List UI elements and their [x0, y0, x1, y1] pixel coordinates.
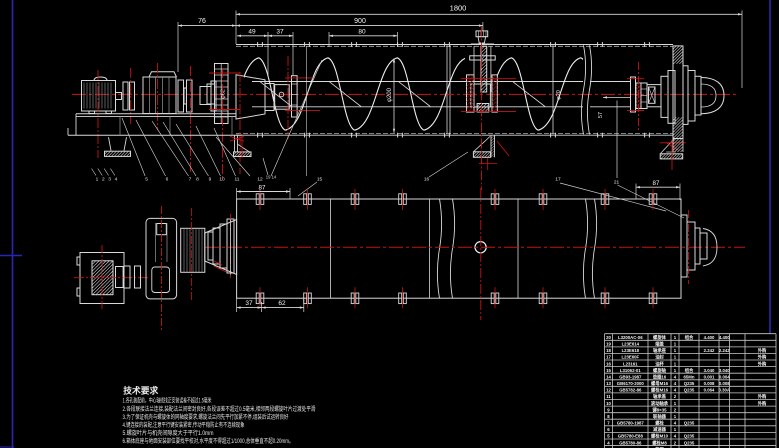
svg-text:14: 14 — [606, 375, 611, 380]
svg-text:L23E618: L23E618 — [622, 348, 640, 353]
svg-text:4.400: 4.400 — [704, 335, 715, 340]
svg-text:Q235: Q235 — [684, 421, 695, 426]
svg-text:0.008: 0.008 — [704, 381, 715, 386]
svg-text:900: 900 — [354, 18, 366, 25]
svg-text:4: 4 — [115, 176, 118, 182]
svg-text:Q235: Q235 — [684, 434, 695, 439]
svg-text:联轴器: 联轴器 — [653, 413, 667, 420]
svg-text:62: 62 — [278, 300, 286, 307]
svg-text:螺旋体: 螺旋体 — [653, 334, 667, 341]
svg-text:φ200: φ200 — [387, 87, 393, 102]
svg-text:10: 10 — [219, 176, 225, 182]
svg-text:5: 5 — [145, 176, 148, 182]
svg-text:12: 12 — [606, 388, 611, 393]
svg-text:垫圈16: 垫圈16 — [653, 374, 667, 381]
svg-text:18: 18 — [606, 348, 611, 353]
svg-text:20: 20 — [606, 335, 611, 340]
svg-text:螺栓: 螺栓 — [655, 420, 664, 427]
svg-text:19: 19 — [606, 342, 611, 347]
svg-text:87: 87 — [653, 180, 660, 187]
svg-text:3.040: 3.040 — [719, 368, 730, 373]
svg-text:4.键连接的装配,注意平行键安装紧密,传动平稳防止有不连续现: 4.键连接的装配,注意平行键安装紧密,传动平稳防止有不连续现象 — [123, 421, 245, 429]
svg-text:76: 76 — [198, 18, 206, 25]
svg-text:1: 1 — [96, 176, 99, 182]
svg-text:11: 11 — [606, 394, 611, 399]
svg-text:GB5780-E88: GB5780-E88 — [618, 434, 644, 439]
svg-text:16: 16 — [606, 361, 611, 366]
svg-text:5.螺旋叶片与机壳间隙度大于平行1.0mm: 5.螺旋叶片与机壳间隙度大于平行1.0mm — [123, 429, 214, 437]
svg-text:外购: 外购 — [758, 347, 767, 354]
svg-text:外购: 外购 — [758, 354, 767, 361]
svg-text:3.040: 3.040 — [704, 368, 715, 373]
svg-text:L3200AC-06: L3200AC-06 — [618, 335, 643, 340]
svg-text:11: 11 — [235, 176, 240, 182]
svg-text:轴承盖: 轴承盖 — [653, 393, 667, 400]
svg-text:87: 87 — [259, 184, 266, 191]
svg-text:2: 2 — [102, 176, 105, 182]
svg-text:滚动轴承: 滚动轴承 — [651, 400, 669, 407]
svg-text:GB93-1987: GB93-1987 — [619, 375, 642, 380]
svg-text:螺栓M10: 螺栓M10 — [651, 433, 669, 440]
svg-text:外购: 外购 — [758, 393, 767, 400]
svg-text:2.242: 2.242 — [704, 348, 715, 353]
svg-text:3: 3 — [108, 176, 111, 182]
svg-text:Q235: Q235 — [684, 440, 695, 445]
svg-text:4.400: 4.400 — [719, 335, 730, 340]
svg-text:φ20: φ20 — [556, 90, 562, 100]
svg-text:9: 9 — [209, 176, 212, 182]
svg-text:6.箱体底座与地面安装部位要找平校对,水平度不得超过1/10: 6.箱体底座与地面安装部位要找平校对,水平度不得超过1/1000,总体垂直不超0… — [123, 437, 294, 445]
svg-text:GB5780-86: GB5780-86 — [619, 440, 642, 445]
svg-text:2.各段联接法兰连接,装配法兰间密封良好,各段误差不超过0.: 2.各段联接法兰连接,装配法兰间密封良好,各段误差不超过0.5毫米,相邻两段螺旋… — [123, 405, 316, 413]
svg-text:GB5780-1987: GB5780-1987 — [617, 421, 645, 426]
svg-text:17: 17 — [555, 176, 561, 182]
svg-text:L23E60F: L23E60F — [621, 355, 639, 360]
svg-text:15: 15 — [606, 368, 611, 373]
svg-text:端盖: 端盖 — [655, 341, 664, 348]
svg-text:L23161: L23161 — [623, 361, 638, 366]
svg-text:L31062-01: L31062-01 — [620, 368, 641, 373]
svg-text:0.008: 0.008 — [719, 381, 730, 386]
svg-text:螺栓M16: 螺栓M16 — [651, 387, 669, 394]
svg-text:10: 10 — [606, 401, 611, 406]
svg-text:12: 12 — [257, 176, 263, 182]
svg-text:0.30A: 0.30A — [719, 388, 730, 393]
svg-text:8: 8 — [196, 176, 199, 182]
svg-text:15: 15 — [317, 176, 323, 182]
svg-text:6: 6 — [166, 176, 169, 182]
svg-text:1800: 1800 — [450, 4, 467, 13]
svg-text:57: 57 — [598, 112, 604, 118]
svg-text:螺旋轴: 螺旋轴 — [653, 367, 667, 374]
svg-text:外购: 外购 — [758, 400, 767, 407]
svg-text:2.242: 2.242 — [719, 348, 730, 353]
svg-text:φ62: φ62 — [221, 89, 227, 99]
svg-text:Q235: Q235 — [684, 388, 695, 393]
svg-text:7: 7 — [189, 176, 192, 182]
svg-text:组合: 组合 — [685, 367, 694, 374]
svg-text:螺栓M8: 螺栓M8 — [652, 439, 667, 446]
svg-text:油杯: 油杯 — [655, 360, 664, 367]
svg-text:螺母M16: 螺母M16 — [651, 380, 669, 387]
svg-text:1.各孔装配前，中心轴线找正安装误差不超过1.5毫米: 1.各孔装配前，中心轴线找正安装误差不超过1.5毫米 — [123, 397, 212, 405]
svg-text:组合: 组合 — [685, 334, 694, 341]
svg-text:16: 16 — [424, 176, 430, 182]
svg-text:Q235: Q235 — [684, 381, 695, 386]
svg-text:3.为了保证机壳与螺旋体的同轴度要求,螺旋法兰间先平行加紧不: 3.为了保证机壳与螺旋体的同轴度要求,螺旋法兰间先平行加紧不停,组装后试运转良好 — [123, 413, 289, 421]
svg-text:13: 13 — [606, 381, 611, 386]
svg-text:键8×35: 键8×35 — [653, 406, 668, 413]
svg-text:37: 37 — [245, 300, 253, 307]
svg-text:GB5782-86: GB5782-86 — [619, 388, 642, 393]
svg-text:80: 80 — [358, 28, 366, 35]
svg-text:GB6170-2000: GB6170-2000 — [617, 381, 645, 386]
svg-text:37: 37 — [276, 28, 284, 35]
svg-text:轴承座: 轴承座 — [653, 347, 667, 354]
svg-text:49: 49 — [248, 28, 256, 35]
svg-text:17: 17 — [606, 355, 611, 360]
svg-text:0.004: 0.004 — [719, 375, 730, 380]
svg-text:21: 21 — [614, 180, 620, 186]
svg-text:0.064: 0.064 — [704, 388, 715, 393]
svg-text:油封: 油封 — [655, 354, 664, 361]
svg-text:外购: 外购 — [758, 360, 767, 367]
svg-text:L23E614: L23E614 — [622, 342, 640, 347]
svg-text:技术要求: 技术要求 — [123, 386, 158, 396]
svg-text:0.001: 0.001 — [704, 375, 715, 380]
svg-text:65Mn: 65Mn — [684, 375, 695, 380]
svg-text:减速器: 减速器 — [653, 426, 667, 433]
